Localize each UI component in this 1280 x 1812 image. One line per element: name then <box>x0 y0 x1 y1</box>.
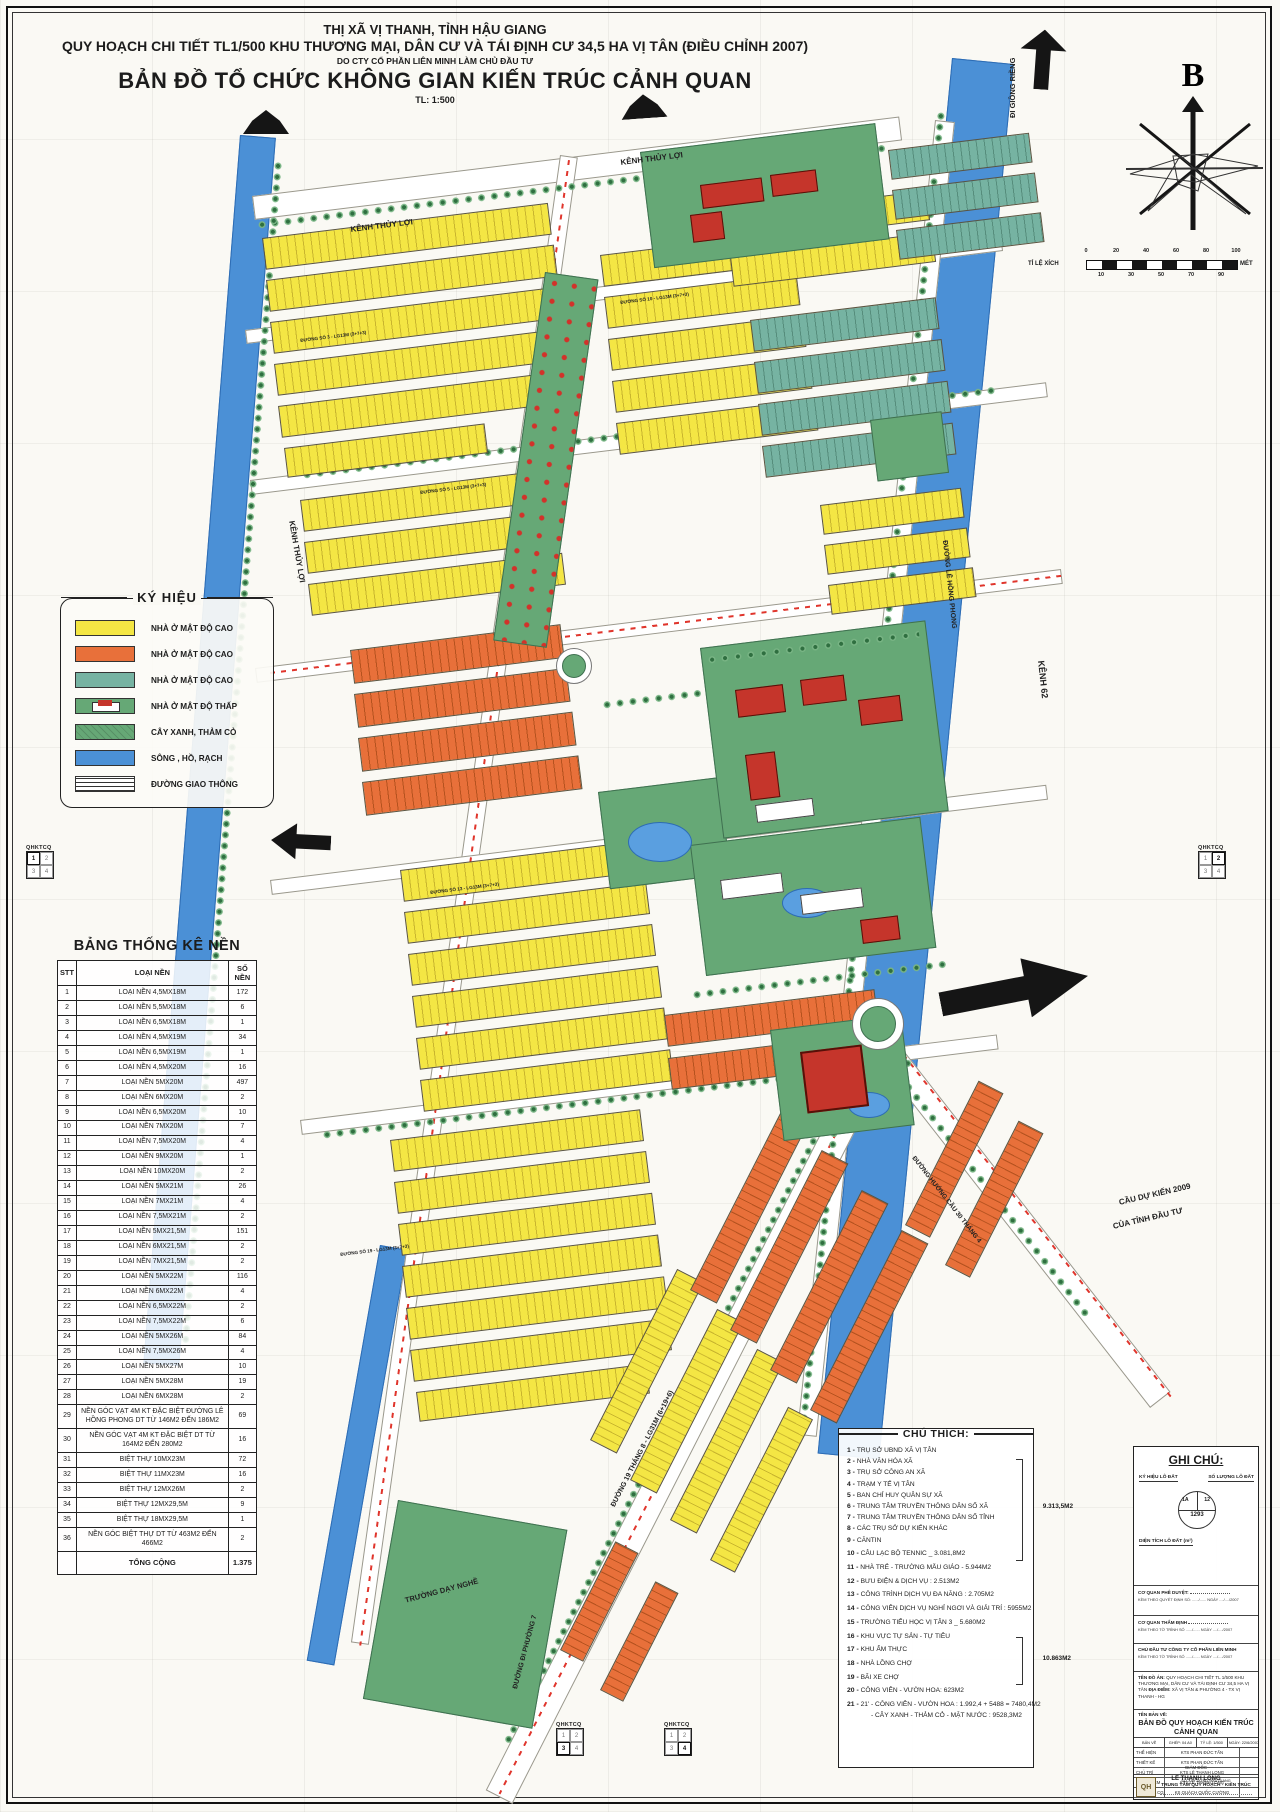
stats-lot-type: LOẠI NỀN 6,5MX22M <box>76 1300 228 1315</box>
stats-lot-type: LOẠI NỀN 5MX20M <box>76 1076 228 1091</box>
compass-rose: B <box>1118 56 1268 252</box>
map-shape <box>860 915 901 943</box>
stats-total-label: TỔNG CỘNG <box>76 1552 228 1575</box>
decor: 2 <box>570 1729 583 1742</box>
note-item: 11 - NHÀ TRẺ - TRƯỜNG MẪU GIÁO - 5.944M2 <box>847 1562 1029 1573</box>
decor: 1 - <box>847 1447 857 1454</box>
stats-stt: 6 <box>58 1061 77 1076</box>
stats-stt: 2 <box>58 1001 77 1016</box>
stats-stt: 32 <box>58 1468 77 1483</box>
notes-items: 1 - TRỤ SỞ UBND XÃ VỊ TÂN2 - NHÀ VĂN HÓA… <box>847 1445 1029 1721</box>
stats-stt: 35 <box>58 1513 77 1528</box>
legend-item-label: NHÀ Ở MẬT ĐỘ THẤP <box>151 702 237 711</box>
note-item: 7 - TRUNG TÂM TRUYỀN THÔNG DÂN SỐ TỈNH <box>847 1512 1029 1523</box>
stats-lot-count: 1 <box>228 1513 256 1528</box>
decor: 1 <box>1199 852 1212 865</box>
stats-lot-type: LOẠI NỀN 5MX22M <box>76 1270 228 1285</box>
decor <box>1190 1589 1230 1594</box>
stats-lot-count: 497 <box>228 1076 256 1091</box>
decor: 6 - <box>847 1503 857 1510</box>
approval-row-2: CƠ QUAN THẨM ĐỊNH KÈM THEO TỜ TRÌNH SỐ .… <box>1138 1619 1254 1632</box>
decor <box>58 1552 77 1575</box>
stats-lot-type: LOẠI NỀN 6,5MX18M <box>76 1016 228 1031</box>
stats-column-header: SỐ NỀN <box>228 961 256 986</box>
sheet-index-label: QHKTCQ <box>26 845 72 851</box>
decor: 2 <box>1212 852 1225 865</box>
decor: 19 - <box>847 1674 861 1681</box>
stats-row: 22LOẠI NỀN 6,5MX22M2 <box>58 1300 257 1315</box>
scale-bar-unit: MÉT <box>1240 261 1253 267</box>
stats-stt: 28 <box>58 1390 77 1405</box>
stats-lot-type: LOẠI NỀN 6MX22M <box>76 1285 228 1300</box>
drawing-name-label: TÊN BẢN VẼ: <box>1138 1712 1167 1717</box>
stats-lot-count: 116 <box>228 1270 256 1285</box>
drawing-meta-cell: GHÉP: 04 A0 <box>1165 1738 1196 1747</box>
bridge-note-label: CỦA TỈNH ĐẦU TƯ <box>1112 1206 1183 1231</box>
stats-lot-count: 2 <box>228 1240 256 1255</box>
stats-lot-type: LOẠI NỀN 5MX27M <box>76 1360 228 1375</box>
stats-row: 32BIỆT THỰ 11MX23M16 <box>58 1468 257 1483</box>
north-route-arrow-icon <box>1018 28 1068 91</box>
decor: 3 <box>27 865 40 878</box>
note-item: 4 - TRẠM Y TẾ VỊ TÂN <box>847 1479 1029 1490</box>
decor: CƠ QUAN PHÊ DUYỆT: <box>1138 1589 1254 1595</box>
stats-lot-count: 7 <box>228 1120 256 1135</box>
legend-item-label: NHÀ Ở MẬT ĐỘ CAO <box>151 650 233 659</box>
decor: 2 <box>40 852 53 865</box>
stats-lot-count: 2 <box>228 1210 256 1225</box>
stats-stt: 14 <box>58 1180 77 1195</box>
map-shape <box>735 684 786 718</box>
decor: KTS PHAN ĐỨC TẤN <box>1165 1748 1240 1757</box>
drawing-meta-row: BẢN VẼGHÉP: 04 A0TỶ LỆ: 1/500NGÀY: 22/6/… <box>1134 1737 1258 1748</box>
decor <box>839 1433 898 1435</box>
stats-stt: 29 <box>58 1405 77 1429</box>
note-item: 20 - CÔNG VIÊN - VƯỜN HOA: 623M2 <box>847 1685 1029 1696</box>
stats-lot-type: BIỆT THỰ 12MX29,5M <box>76 1498 228 1513</box>
stats-lot-count: 2 <box>228 1528 256 1552</box>
decor: 10 - <box>847 1550 861 1557</box>
stats-table-header: STTLOẠI NỀNSỐ NỀN <box>58 961 257 986</box>
west-route-arrow-icon <box>270 822 332 861</box>
stats-lot-type: LOẠI NỀN 7,5MX26M <box>76 1345 228 1360</box>
approval-row-3: CHỦ ĐẦU TƯ CÔNG TY CỔ PHẦN LIÊN MINH KÈM… <box>1138 1647 1254 1659</box>
decor <box>98 700 112 706</box>
decor: SỞ XÂY DỰNG HẬU GIANG TRUNG TÂM QUY HOẠC… <box>1156 1779 1256 1795</box>
stats-stt: 13 <box>58 1165 77 1180</box>
legend-item: CÂY XANH, THẢM CỎ <box>75 719 265 745</box>
legend-swatch <box>75 724 135 740</box>
stats-row: 9LOẠI NỀN 6,5MX20M10 <box>58 1106 257 1121</box>
note-item: 12 - BƯU ĐIỆN & DỊCH VỤ : 2.513M2 <box>847 1576 1029 1587</box>
scale-bar: TỈ LỆ XÍCH MÉT 020406080100 1030507090 <box>1028 248 1266 288</box>
map-shape <box>800 1044 869 1113</box>
decor: 90 <box>1218 272 1224 278</box>
approval-2-label: CƠ QUAN THẨM ĐỊNH <box>1138 1620 1187 1625</box>
note-item: 8 - CÁC TRỤ SỞ DỰ KIẾN KHÁC <box>847 1523 1029 1534</box>
lot-sample-circle: 1A 12 1293 <box>1178 1491 1216 1529</box>
stats-row: 14LOẠI NỀN 5MX21M26 <box>58 1180 257 1195</box>
decor: 80 <box>1203 248 1209 254</box>
legend-title: KÝ HIỆU <box>61 590 273 605</box>
bridge-arrow-icon <box>935 946 1094 1034</box>
stats-stt: 27 <box>58 1375 77 1390</box>
decor: 3 <box>1199 865 1212 878</box>
stats-stt: 12 <box>58 1150 77 1165</box>
stats-lot-type: BIỆT THỰ 18MX29,5M <box>76 1513 228 1528</box>
stats-stt: 26 <box>58 1360 77 1375</box>
stats-row: 11LOẠI NỀN 7,5MX20M4 <box>58 1135 257 1150</box>
stats-lot-type: LOẠI NỀN 4,5MX18M <box>76 986 228 1001</box>
stats-stt: 22 <box>58 1300 77 1315</box>
stats-lot-type: LOẠI NỀN 7MX20M <box>76 1120 228 1135</box>
stats-stt: 4 <box>58 1031 77 1046</box>
legend-item: NHÀ Ở MẬT ĐỘ CAO <box>75 641 265 667</box>
decor <box>1134 1615 1258 1616</box>
stats-lot-type: LOẠI NỀN 4,5MX20M <box>76 1061 228 1076</box>
stats-row: 23LOẠI NỀN 7,5MX22M6 <box>58 1315 257 1330</box>
decor: 8 - <box>847 1525 857 1532</box>
note-item: 6 - TRUNG TÂM TRUYỀN THÔNG DÂN SỐ XÃ <box>847 1501 1029 1512</box>
stats-stt: 9 <box>58 1106 77 1121</box>
decor: 20 - <box>847 1687 861 1694</box>
location-label: ĐỊA ĐIỂM: <box>1148 1687 1170 1692</box>
decor <box>1134 1671 1258 1672</box>
decor <box>1148 156 1246 214</box>
decor: 50 <box>1158 272 1164 278</box>
stats-row: 21LOẠI NỀN 6MX22M4 <box>58 1285 257 1300</box>
stats-total-row: TỔNG CỘNG 1.375 <box>58 1552 257 1575</box>
decor: 100 <box>1231 248 1240 254</box>
decor: CƠ QUAN THẨM ĐỊNH <box>1138 1619 1254 1625</box>
stats-lot-type: LOẠI NỀN 5MX21M <box>76 1180 228 1195</box>
decor: 10 <box>1098 272 1104 278</box>
map-title: BẢN ĐỒ TỔ CHỨC KHÔNG GIAN KIẾN TRÚC CẢNH… <box>40 67 830 95</box>
decor: 1 <box>27 852 40 865</box>
decor: 30 <box>1128 272 1134 278</box>
legend-item: NHÀ Ở MẬT ĐỘ THẤP <box>75 693 265 719</box>
stats-lot-count: 4 <box>228 1135 256 1150</box>
stats-lot-type: LOẠI NỀN 5MX26M <box>76 1330 228 1345</box>
legend-swatch <box>75 672 135 688</box>
map-shape <box>860 1006 896 1042</box>
stats-lot-count: 6 <box>228 1001 256 1016</box>
stats-lot-count: 9 <box>228 1498 256 1513</box>
map-shape <box>858 695 903 726</box>
decor <box>207 597 273 599</box>
stats-lot-count: 26 <box>228 1180 256 1195</box>
stats-row: 20LOẠI NỀN 5MX22M116 <box>58 1270 257 1285</box>
stats-lot-type: BIỆT THỰ 12MX26M <box>76 1483 228 1498</box>
stats-lot-count: 16 <box>228 1468 256 1483</box>
note-item: 13 - CÔNG TRÌNH DỊCH VỤ ĐA NĂNG : 2.705M… <box>847 1589 1029 1600</box>
legend-item: ĐƯỜNG GIAO THÔNG <box>75 771 265 797</box>
stats-lot-count: 16 <box>228 1061 256 1076</box>
stats-row: 27LOẠI NỀN 5MX28M19 <box>58 1375 257 1390</box>
legend-swatch <box>75 776 135 792</box>
note-item: 14 - CÔNG VIÊN DỊCH VỤ NGHỈ NGƠI VÀ GIẢI… <box>847 1603 1029 1614</box>
ghi-chu-box: GHI CHÚ: KÝ HIỆU LÔ ĐẤT SỐ LƯỢNG LÔ ĐẤT … <box>1133 1446 1259 1800</box>
stats-stt: 33 <box>58 1483 77 1498</box>
lot-count-label: SỐ LƯỢNG LÔ ĐẤT <box>1208 1475 1254 1482</box>
sample-symbol: 1A <box>1182 1497 1189 1503</box>
lot-area-label: DIỆN TÍCH LÔ ĐẤT (m²) <box>1139 1539 1193 1546</box>
note-item: 15 - TRƯỜNG TIỂU HỌC VỊ TÂN 3 _ 5.680M2 <box>847 1617 1029 1628</box>
stats-lot-type: LOẠI NỀN 7,5MX20M <box>76 1135 228 1150</box>
stats-row: 34BIỆT THỰ 12MX29,5M9 <box>58 1498 257 1513</box>
staff-row: THỂ HIỆNKTS PHAN ĐỨC TẤN <box>1134 1748 1258 1758</box>
stats-lot-count: 2 <box>228 1255 256 1270</box>
canal-label: KÊNH 62 <box>1036 660 1050 699</box>
decor <box>974 1433 1033 1435</box>
decor <box>1134 1585 1258 1586</box>
stats-stt: 34 <box>58 1498 77 1513</box>
stats-lot-count: 2 <box>228 1165 256 1180</box>
stats-row: 25LOẠI NỀN 7,5MX26M4 <box>58 1345 257 1360</box>
stats-stt: 20 <box>58 1270 77 1285</box>
stats-row: 8LOẠI NỀN 6MX20M2 <box>58 1091 257 1106</box>
stats-lot-count: 16 <box>228 1429 256 1453</box>
stats-stt: 24 <box>58 1330 77 1345</box>
decor: 9 - <box>847 1537 857 1544</box>
stats-stt: 30 <box>58 1429 77 1453</box>
scale-bar-strip <box>1086 260 1238 270</box>
stats-lot-count: 69 <box>228 1405 256 1429</box>
legend-swatch <box>75 620 135 636</box>
stats-lot-count: 172 <box>228 986 256 1001</box>
stats-lot-type: LOẠI NỀN 5MX28M <box>76 1375 228 1390</box>
decor: 1 <box>665 1729 678 1742</box>
sample-area: 1293 <box>1179 1512 1215 1518</box>
decor: 2 - <box>847 1458 857 1465</box>
sheet-index-grid: 1234 <box>26 851 54 879</box>
ghi-chu-title: GHI CHÚ: <box>1134 1453 1258 1467</box>
notes-brace-1 <box>1016 1459 1023 1561</box>
route-label: ĐI GIỒNG RIỀNG <box>1008 58 1017 118</box>
legend-item-label: NHÀ Ở MẬT ĐỘ CAO <box>151 624 233 633</box>
approval-2-sub: KÈM THEO TỜ TRÌNH SỐ ....../...... NGÀY … <box>1138 1627 1254 1632</box>
stats-row: 30NỀN GÓC VẠT 4M KT ĐẶC BIỆT DT TỪ 164M2… <box>58 1429 257 1453</box>
approval-1-label: CƠ QUAN PHÊ DUYỆT: <box>1138 1590 1189 1595</box>
decor: 15 - <box>847 1619 861 1626</box>
stats-stt: 5 <box>58 1046 77 1061</box>
sheet-index-marker: QHKTCQ1234 <box>556 1722 602 1756</box>
decor: TỔNG CỘNG 1.375 <box>58 1552 257 1575</box>
stats-lot-type: LOẠI NỀN 6MX20M <box>76 1091 228 1106</box>
canal-cap-icon <box>243 110 289 134</box>
sheet-index-marker: QHKTCQ1234 <box>664 1722 710 1756</box>
stats-column-header: STT <box>58 961 77 986</box>
stats-lot-count: 1 <box>228 1150 256 1165</box>
note-item: 17 - KHU ẨM THỰC <box>847 1644 1029 1655</box>
stats-lot-count: 84 <box>228 1330 256 1345</box>
decor: 0 <box>1084 248 1087 254</box>
note-item: 16 - KHU VỰC TỰ SẢN - TỰ TIÊU <box>847 1631 1029 1642</box>
drawing-meta-cell: TỶ LỆ: 1/500 <box>1197 1738 1228 1747</box>
note-item: 19 - BÃI XE CHỢ <box>847 1672 1029 1683</box>
decor <box>1134 1709 1258 1710</box>
stats-row: 7LOẠI NỀN 5MX20M497 <box>58 1076 257 1091</box>
province-title: THỊ XÃ VỊ THANH, TỈNH HẬU GIANG <box>40 22 830 38</box>
stats-lot-count: 2 <box>228 1390 256 1405</box>
stats-row: 19LOẠI NỀN 7MX21,5M2 <box>58 1255 257 1270</box>
stats-lot-count: 4 <box>228 1195 256 1210</box>
sheet-index-marker: QHKTCQ1234 <box>26 845 72 879</box>
north-letter: B <box>1182 57 1205 94</box>
stats-row: 31BIỆT THỰ 10MX23M72 <box>58 1453 257 1468</box>
map-shape <box>800 675 847 706</box>
notes-brace-2 <box>1016 1637 1023 1685</box>
sheet-index-grid: 1234 <box>664 1728 692 1756</box>
legend-item: SÔNG , HỒ, RẠCH <box>75 745 265 771</box>
decor: 1LOẠI NỀN 4,5MX18M1722LOẠI NỀN 5,5MX18M6… <box>58 986 257 1552</box>
stats-lot-count: 4 <box>228 1285 256 1300</box>
stats-lot-count: 10 <box>228 1360 256 1375</box>
legend-items: NHÀ Ở MẬT ĐỘ CAONHÀ Ở MẬT ĐỘ CAONHÀ Ở MẬ… <box>75 615 265 797</box>
decor: 11 - <box>847 1564 860 1571</box>
note-item: 9 - CĂNTIN <box>847 1535 1029 1546</box>
decor: 13 - <box>847 1591 861 1598</box>
map-shape <box>870 411 949 481</box>
decor <box>1240 1748 1258 1757</box>
investor-line: DO CTY CỔ PHẦN LIÊN MINH LÀM CHỦ ĐẦU TƯ <box>40 56 830 67</box>
note-item: 5 - BAN CHỈ HUY QUÂN SỰ XÃ <box>847 1490 1029 1501</box>
sheet-index-label: QHKTCQ <box>556 1722 602 1728</box>
stats-lot-type: NỀN GÓC VẠT 4M KT ĐẶC BIỆT DT TỪ 164M2 Đ… <box>76 1429 228 1453</box>
org-logo: QH <box>1136 1777 1156 1797</box>
sheet-index-label: QHKTCQ <box>1198 845 1244 851</box>
stats-row: 10LOẠI NỀN 7MX20M7 <box>58 1120 257 1135</box>
stats-row: 26LOẠI NỀN 5MX27M10 <box>58 1360 257 1375</box>
decor: 70 <box>1188 272 1194 278</box>
stats-stt: 15 <box>58 1195 77 1210</box>
legend-item-label: ĐƯỜNG GIAO THÔNG <box>151 780 238 789</box>
decor: 16 - <box>847 1633 861 1640</box>
stats-row: 2LOẠI NỀN 5,5MX18M6 <box>58 1001 257 1016</box>
legend-item-label: CÂY XANH, THẢM CỎ <box>151 728 236 737</box>
stats-row: 5LOẠI NỀN 6,5MX19M1 <box>58 1046 257 1061</box>
stats-stt: 3 <box>58 1016 77 1031</box>
stats-lot-type: LOẠI NỀN 7,5MX22M <box>76 1315 228 1330</box>
stats-lot-count: 72 <box>228 1453 256 1468</box>
decor: 4 <box>40 865 53 878</box>
decor: 14 - <box>847 1605 861 1612</box>
decor: 21 - <box>847 1701 861 1708</box>
stats-lot-count: 2 <box>228 1091 256 1106</box>
decor: 5 - <box>847 1492 857 1499</box>
decor: 40 <box>1143 248 1149 254</box>
legend-box: KÝ HIỆU NHÀ Ở MẬT ĐỘ CAONHÀ Ở MẬT ĐỘ CAO… <box>60 598 274 808</box>
plan-title: QUY HOẠCH CHI TIẾT TL1/500 KHU THƯƠNG MẠ… <box>40 38 830 56</box>
project-name-row: TÊN ĐỒ ÁN: QUY HOẠCH CHI TIẾT TL 1/500 K… <box>1138 1675 1254 1700</box>
map-shape <box>562 654 586 678</box>
sheet-index-grid: 1234 <box>556 1728 584 1756</box>
stats-stt: 23 <box>58 1315 77 1330</box>
note-item: 1 - TRỤ SỞ UBND XÃ VỊ TÂN <box>847 1445 1029 1456</box>
drawing-meta-cell: NGÀY: 22/6/2007 <box>1228 1738 1258 1747</box>
legend-swatch <box>75 750 135 766</box>
lot-symbol-label: KÝ HIỆU LÔ ĐẤT <box>1139 1475 1178 1482</box>
notes-title: CHÚ THÍCH: <box>839 1428 1033 1440</box>
map-shape <box>363 1500 567 1729</box>
stats-lot-type: LOẠI NỀN 6,5MX19M <box>76 1046 228 1061</box>
stats-lot-type: LOẠI NỀN 7MX21M <box>76 1195 228 1210</box>
stats-stt: 16 <box>58 1210 77 1225</box>
approval-3-sub: KÈM THEO TỜ TRÌNH SỐ ....../...... NGÀY … <box>1138 1654 1254 1659</box>
stats-stt: 19 <box>58 1255 77 1270</box>
stats-stt: 8 <box>58 1091 77 1106</box>
bridge-note-label: CẦU DỰ KIẾN 2009 <box>1118 1182 1191 1207</box>
org-name-2: TRUNG TÂM QUY HOẠCH - KIẾN TRÚC <box>1156 1783 1256 1788</box>
notes-box: CHÚ THÍCH: 1 - TRỤ SỞ UBND XÃ VỊ TÂN2 - … <box>838 1428 1034 1768</box>
stats-lot-type: LOẠI NỀN 6MX21,5M <box>76 1240 228 1255</box>
decor <box>1197 1492 1198 1510</box>
legend-swatch <box>75 646 135 662</box>
stats-lot-count: 151 <box>228 1225 256 1240</box>
decor: 4 <box>570 1742 583 1755</box>
decor: CHỦ ĐẦU TƯ CÔNG TY CỔ PHẦN LIÊN MINH <box>1138 1647 1254 1652</box>
sample-count: 12 <box>1204 1497 1210 1503</box>
legend-item: NHÀ Ở MẬT ĐỘ CAO <box>75 615 265 641</box>
decor: 3 <box>665 1742 678 1755</box>
sheet-index-marker: QHKTCQ1234 <box>1198 845 1244 879</box>
stats-lot-type: NỀN GÓC BIỆT THỰ DT TỪ 463M2 ĐẾN 466M2 <box>76 1528 228 1552</box>
note-item: 3 - TRỤ SỞ CÔNG AN XÃ <box>847 1467 1029 1478</box>
decor: THỂ HIỆN <box>1134 1748 1165 1757</box>
stats-row: 35BIỆT THỰ 18MX29,5M1 <box>58 1513 257 1528</box>
stats-row: 24LOẠI NỀN 5MX26M84 <box>58 1330 257 1345</box>
approval-3-label: CHỦ ĐẦU TƯ CÔNG TY CỔ PHẦN LIÊN MINH <box>1138 1647 1236 1652</box>
org-footer: QH SỞ XÂY DỰNG HẬU GIANG TRUNG TÂM QUY H… <box>1134 1774 1258 1799</box>
stats-row: 17LOẠI NỀN 5MX21,5M151 <box>58 1225 257 1240</box>
approval-1-sub: KÈM THEO QUYẾT ĐỊNH SỐ: ....../...... NG… <box>1138 1597 1254 1602</box>
note-item: 21 - 21' - CÔNG VIÊN - VƯỜN HOA : 1.992,… <box>847 1699 1029 1710</box>
stats-row: 6LOẠI NỀN 4,5MX20M16 <box>58 1061 257 1076</box>
stats-stt: 25 <box>58 1345 77 1360</box>
stats-row: 33BIỆT THỰ 12MX26M2 <box>58 1483 257 1498</box>
stats-lot-type: LOẠI NỀN 5,5MX18M <box>76 1001 228 1016</box>
stats-total-value: 1.375 <box>228 1552 256 1575</box>
notes-brace-2-value: 10.863M2 <box>1043 1655 1071 1662</box>
note-item: 18 - NHÀ LỒNG CHỢ <box>847 1658 1029 1669</box>
stats-row: 16LOẠI NỀN 7,5MX21M2 <box>58 1210 257 1225</box>
stats-column-header: LOẠI NỀN <box>76 961 228 986</box>
stats-stt: 36 <box>58 1528 77 1552</box>
legend-title-text: KÝ HIỆU <box>133 590 201 605</box>
stats-stt: 17 <box>58 1225 77 1240</box>
scale-line: TL: 1:500 <box>40 95 830 106</box>
stats-lot-type: LOẠI NỀN 7MX21,5M <box>76 1255 228 1270</box>
stats-stt: 1 <box>58 986 77 1001</box>
org-address-line <box>1160 1789 1252 1795</box>
approval-row-1: CƠ QUAN PHÊ DUYỆT: KÈM THEO QUYẾT ĐỊNH S… <box>1138 1589 1254 1602</box>
decor: 4 <box>1212 865 1225 878</box>
stats-stt: 31 <box>58 1453 77 1468</box>
decor: 18 - <box>847 1660 861 1667</box>
lot-statistics-table: BẢNG THỐNG KÊ NỀN STTLOẠI NỀNSỐ NỀN 1LOẠ… <box>57 938 257 1575</box>
stats-stt: 11 <box>58 1135 77 1150</box>
stats-row: 15LOẠI NỀN 7MX21M4 <box>58 1195 257 1210</box>
stats-stt: 10 <box>58 1120 77 1135</box>
map-shape <box>690 211 725 243</box>
drawing-name-row: TÊN BẢN VẼ: BẢN ĐỒ QUY HOẠCH KIẾN TRÚC C… <box>1138 1712 1254 1736</box>
decor: 7 - <box>847 1514 857 1521</box>
stats-lot-type: LOẠI NỀN 7,5MX21M <box>76 1210 228 1225</box>
stats-lot-count: 2 <box>228 1300 256 1315</box>
stats-lot-type: LOẠI NỀN 10MX20M <box>76 1165 228 1180</box>
decor: STTLOẠI NỀNSỐ NỀN <box>58 961 257 986</box>
note-item: 2 - NHÀ VĂN HÓA XÃ <box>847 1456 1029 1467</box>
